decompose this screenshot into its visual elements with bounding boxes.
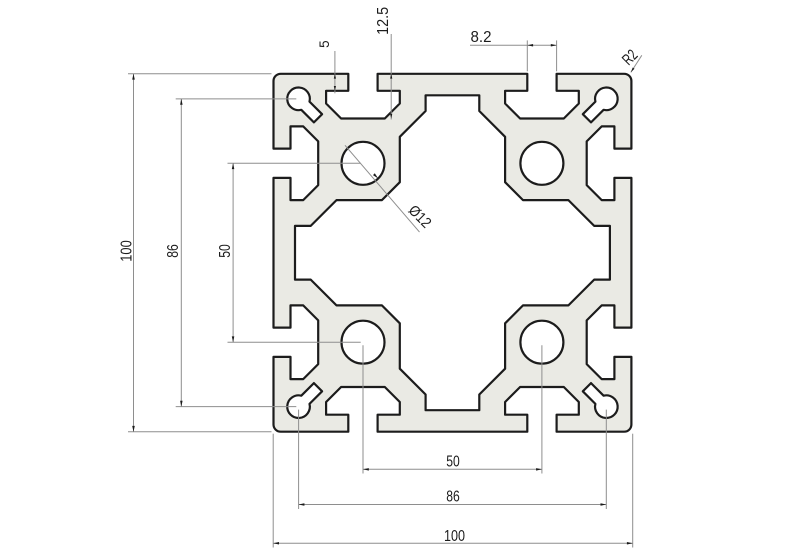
svg-text:5: 5 (317, 40, 332, 48)
svg-text:100: 100 (444, 528, 465, 545)
svg-text:8.2: 8.2 (471, 29, 492, 46)
svg-text:86: 86 (446, 489, 460, 506)
svg-text:12.5: 12.5 (375, 7, 392, 35)
svg-text:50: 50 (446, 453, 460, 470)
svg-text:86: 86 (165, 244, 182, 258)
svg-text:50: 50 (217, 244, 234, 258)
svg-text:100: 100 (119, 240, 136, 262)
